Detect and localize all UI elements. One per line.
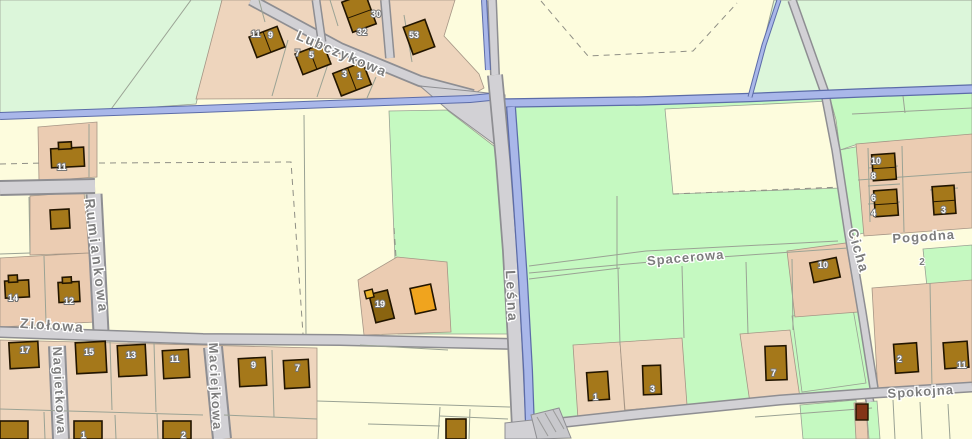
- svg-text:4: 4: [871, 208, 876, 218]
- svg-text:53: 53: [409, 30, 419, 40]
- svg-text:6: 6: [871, 193, 876, 203]
- svg-text:15: 15: [84, 347, 94, 357]
- svg-text:10: 10: [818, 260, 828, 270]
- svg-text:12: 12: [64, 296, 74, 306]
- svg-text:11: 11: [57, 162, 67, 172]
- svg-text:9: 9: [268, 30, 273, 40]
- svg-text:8: 8: [871, 171, 876, 181]
- svg-text:19: 19: [375, 299, 385, 309]
- svg-text:30: 30: [371, 9, 381, 19]
- svg-text:1: 1: [81, 430, 86, 439]
- svg-text:11: 11: [251, 29, 261, 39]
- svg-text:11: 11: [170, 354, 180, 364]
- svg-text:1: 1: [357, 71, 362, 81]
- svg-text:10: 10: [871, 156, 881, 166]
- svg-text:3: 3: [941, 205, 946, 215]
- svg-text:2: 2: [181, 430, 186, 439]
- svg-text:7: 7: [771, 368, 776, 378]
- svg-text:9: 9: [251, 360, 256, 370]
- svg-text:2: 2: [919, 257, 925, 268]
- svg-text:32: 32: [357, 27, 367, 37]
- svg-text:7: 7: [295, 363, 300, 373]
- svg-text:13: 13: [126, 350, 136, 360]
- svg-text:3: 3: [650, 384, 655, 394]
- svg-text:Leśna: Leśna: [503, 270, 522, 324]
- svg-text:2: 2: [897, 354, 902, 364]
- svg-text:5: 5: [309, 50, 314, 60]
- svg-text:1: 1: [593, 392, 598, 402]
- svg-text:17: 17: [20, 345, 30, 355]
- svg-text:14: 14: [8, 293, 18, 303]
- svg-text:11: 11: [957, 360, 967, 370]
- svg-text:7: 7: [295, 48, 300, 58]
- svg-text:3: 3: [342, 69, 347, 79]
